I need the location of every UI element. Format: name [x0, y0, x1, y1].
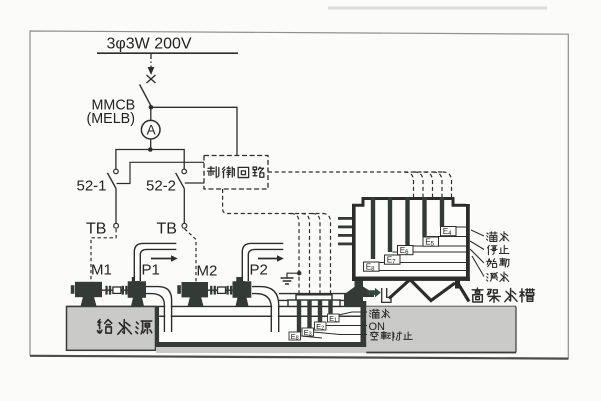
- svg-text:3φ3W 200V: 3φ3W 200V: [107, 36, 192, 53]
- svg-text:M1: M1: [91, 262, 112, 279]
- svg-text:A: A: [147, 123, 156, 138]
- svg-text:(MELB): (MELB): [87, 111, 135, 127]
- svg-text:TB: TB: [86, 221, 106, 238]
- svg-text:M2: M2: [197, 263, 218, 280]
- svg-text:TB: TB: [157, 221, 177, 238]
- svg-text:P1: P1: [142, 262, 160, 279]
- svg-text:52-1: 52-1: [77, 178, 107, 195]
- svg-text:P2: P2: [250, 262, 268, 279]
- svg-text:52-2: 52-2: [146, 178, 176, 195]
- svg-text:ON: ON: [369, 321, 386, 333]
